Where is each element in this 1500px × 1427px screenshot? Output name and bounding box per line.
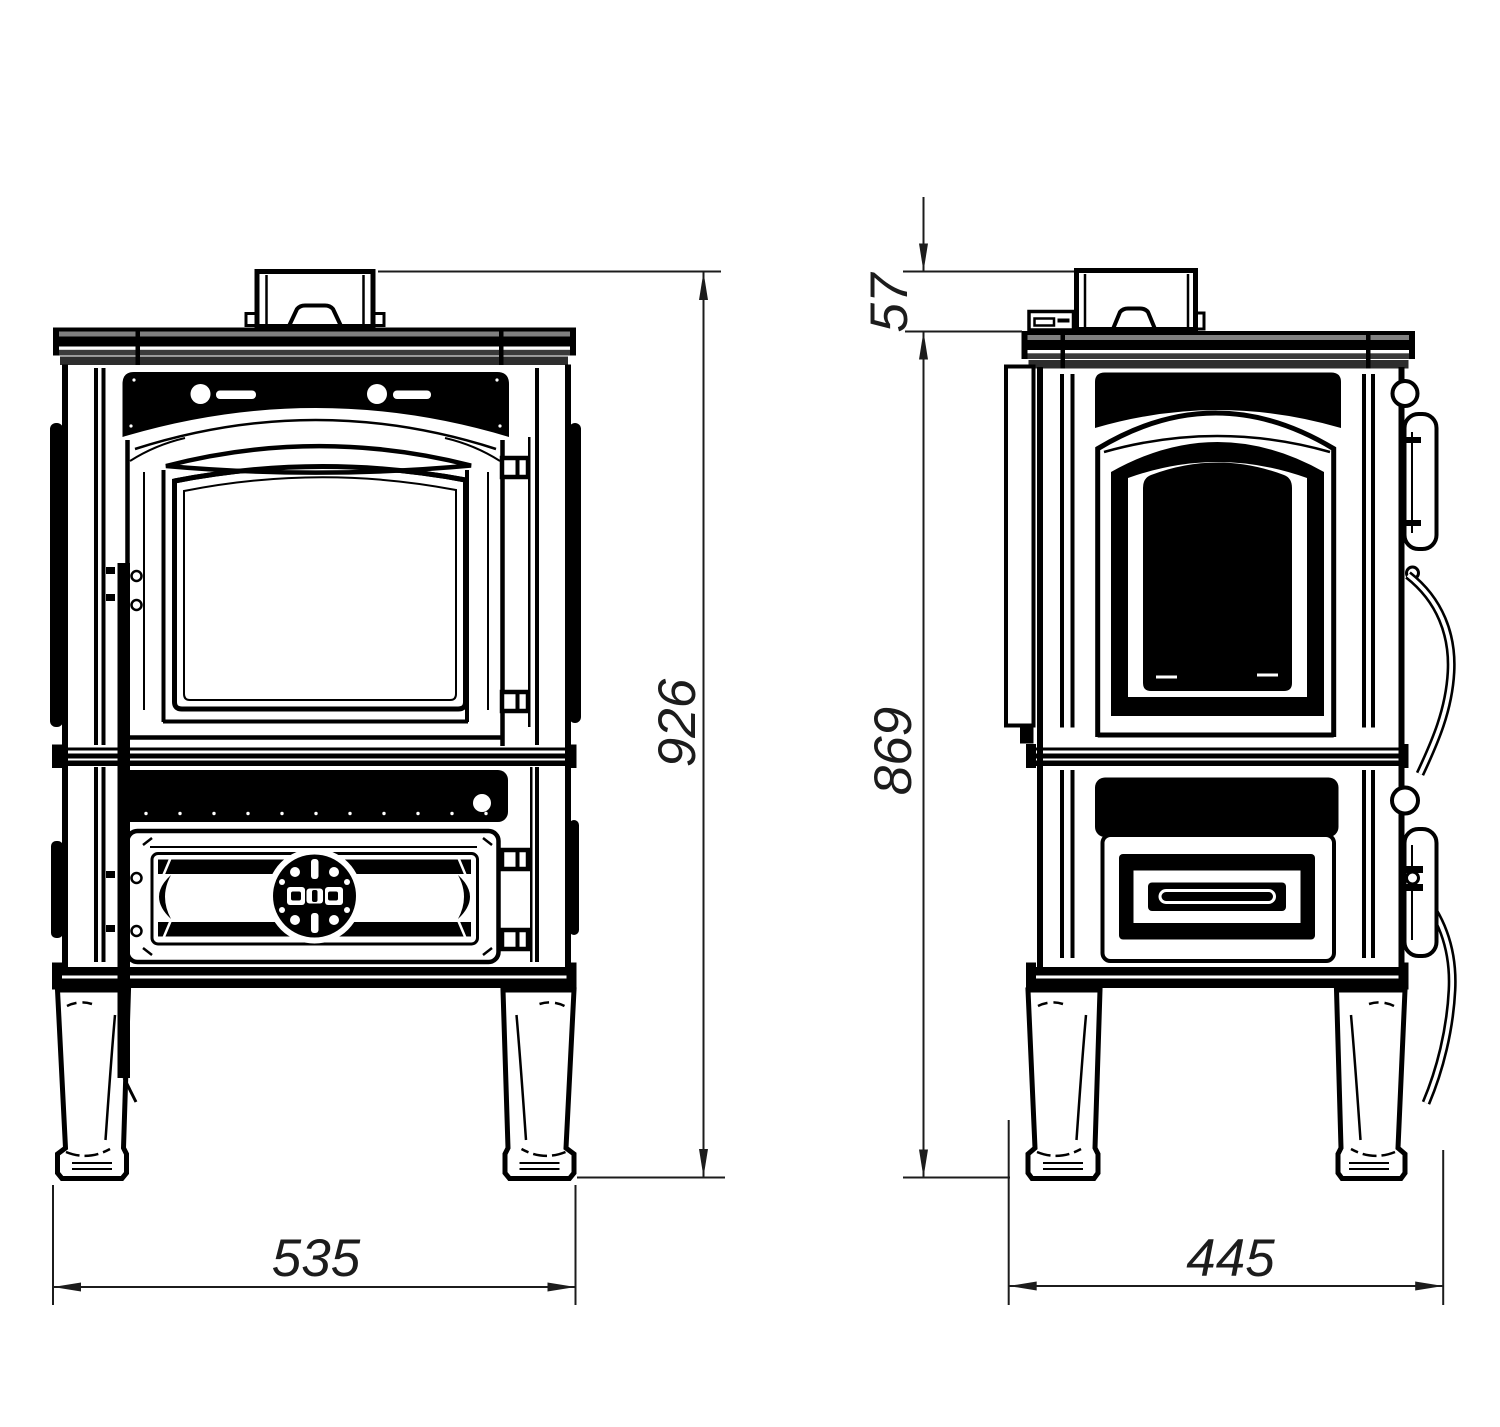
svg-text:57: 57 [860, 271, 919, 332]
svg-text:926: 926 [648, 678, 707, 767]
svg-text:445: 445 [1186, 1229, 1275, 1288]
svg-text:869: 869 [864, 707, 923, 795]
svg-text:535: 535 [272, 1229, 361, 1288]
